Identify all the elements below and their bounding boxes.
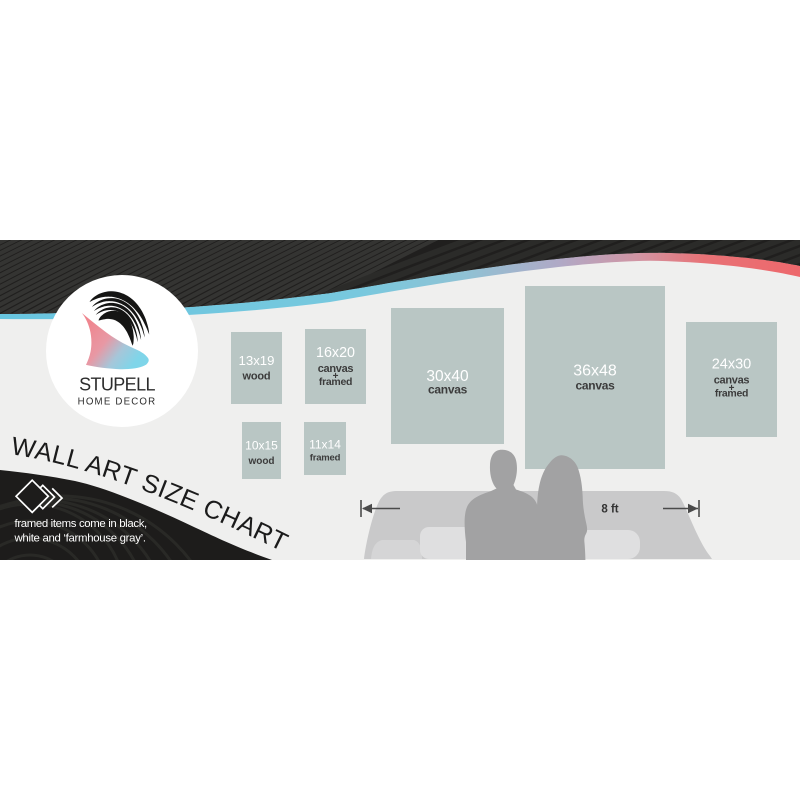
svg-text:wood: wood <box>247 456 274 467</box>
svg-text:wood: wood <box>242 371 271 383</box>
svg-text:framed: framed <box>310 453 341 464</box>
svg-text:framed items come in black,: framed items come in black, <box>15 518 148 530</box>
svg-text:STUPELL: STUPELL <box>79 375 155 395</box>
svg-text:HOME DECOR: HOME DECOR <box>78 397 157 408</box>
svg-text:11x14: 11x14 <box>309 437 341 451</box>
svg-text:framed: framed <box>319 376 352 388</box>
svg-text:white and ‘farmhouse gray’.: white and ‘farmhouse gray’. <box>14 532 146 544</box>
svg-text:framed: framed <box>715 388 748 400</box>
svg-text:8 ft: 8 ft <box>601 504 618 516</box>
svg-text:13x19: 13x19 <box>239 353 275 368</box>
svg-text:24x30: 24x30 <box>712 357 752 373</box>
svg-text:16x20: 16x20 <box>316 345 355 361</box>
svg-text:36x48: 36x48 <box>573 363 617 380</box>
svg-text:10x15: 10x15 <box>245 439 278 453</box>
svg-text:canvas: canvas <box>428 383 468 397</box>
svg-text:canvas: canvas <box>576 378 616 392</box>
